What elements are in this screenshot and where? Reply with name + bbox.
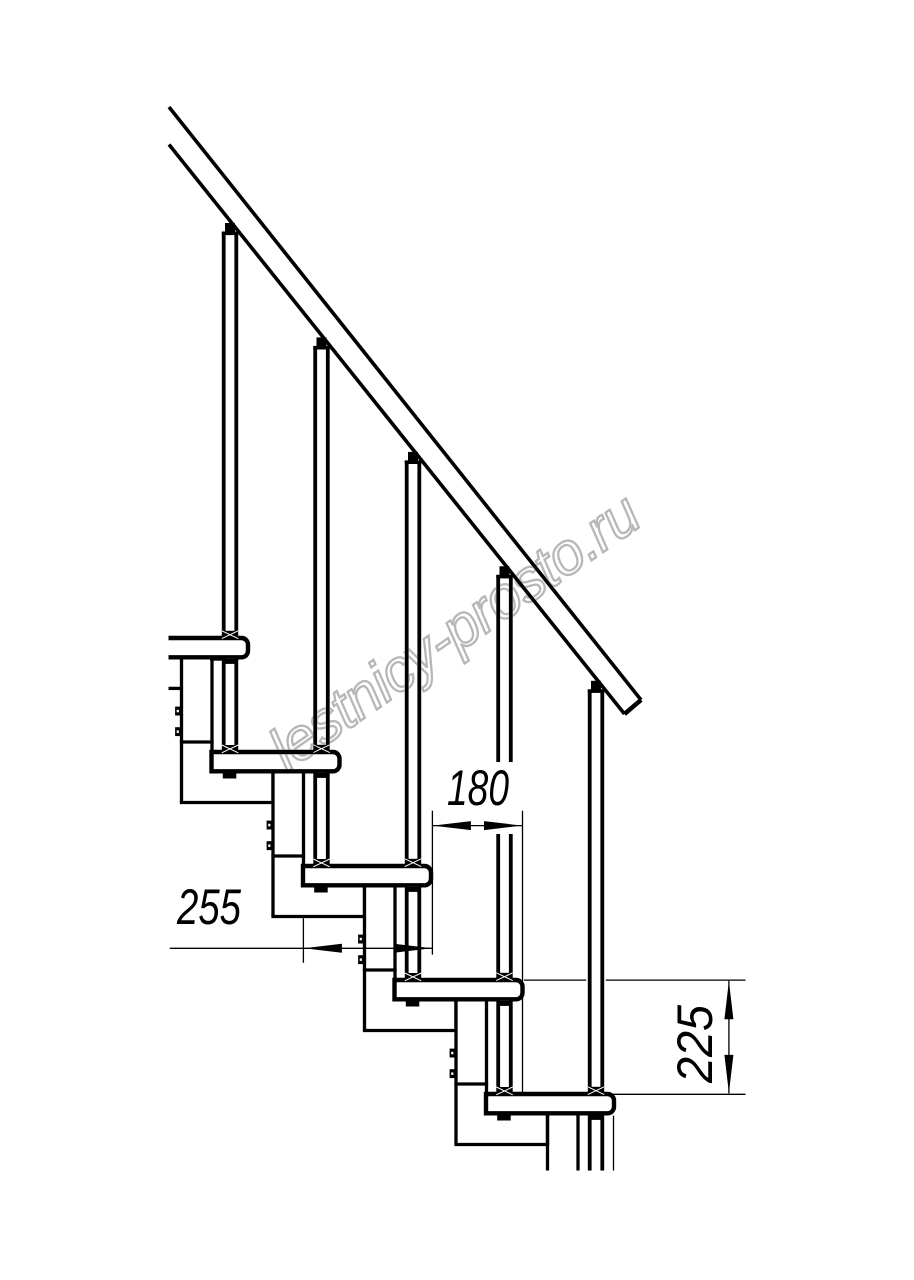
svg-text:225: 225 <box>667 1005 723 1084</box>
svg-text:180: 180 <box>447 760 509 816</box>
svg-text:255: 255 <box>176 879 241 935</box>
